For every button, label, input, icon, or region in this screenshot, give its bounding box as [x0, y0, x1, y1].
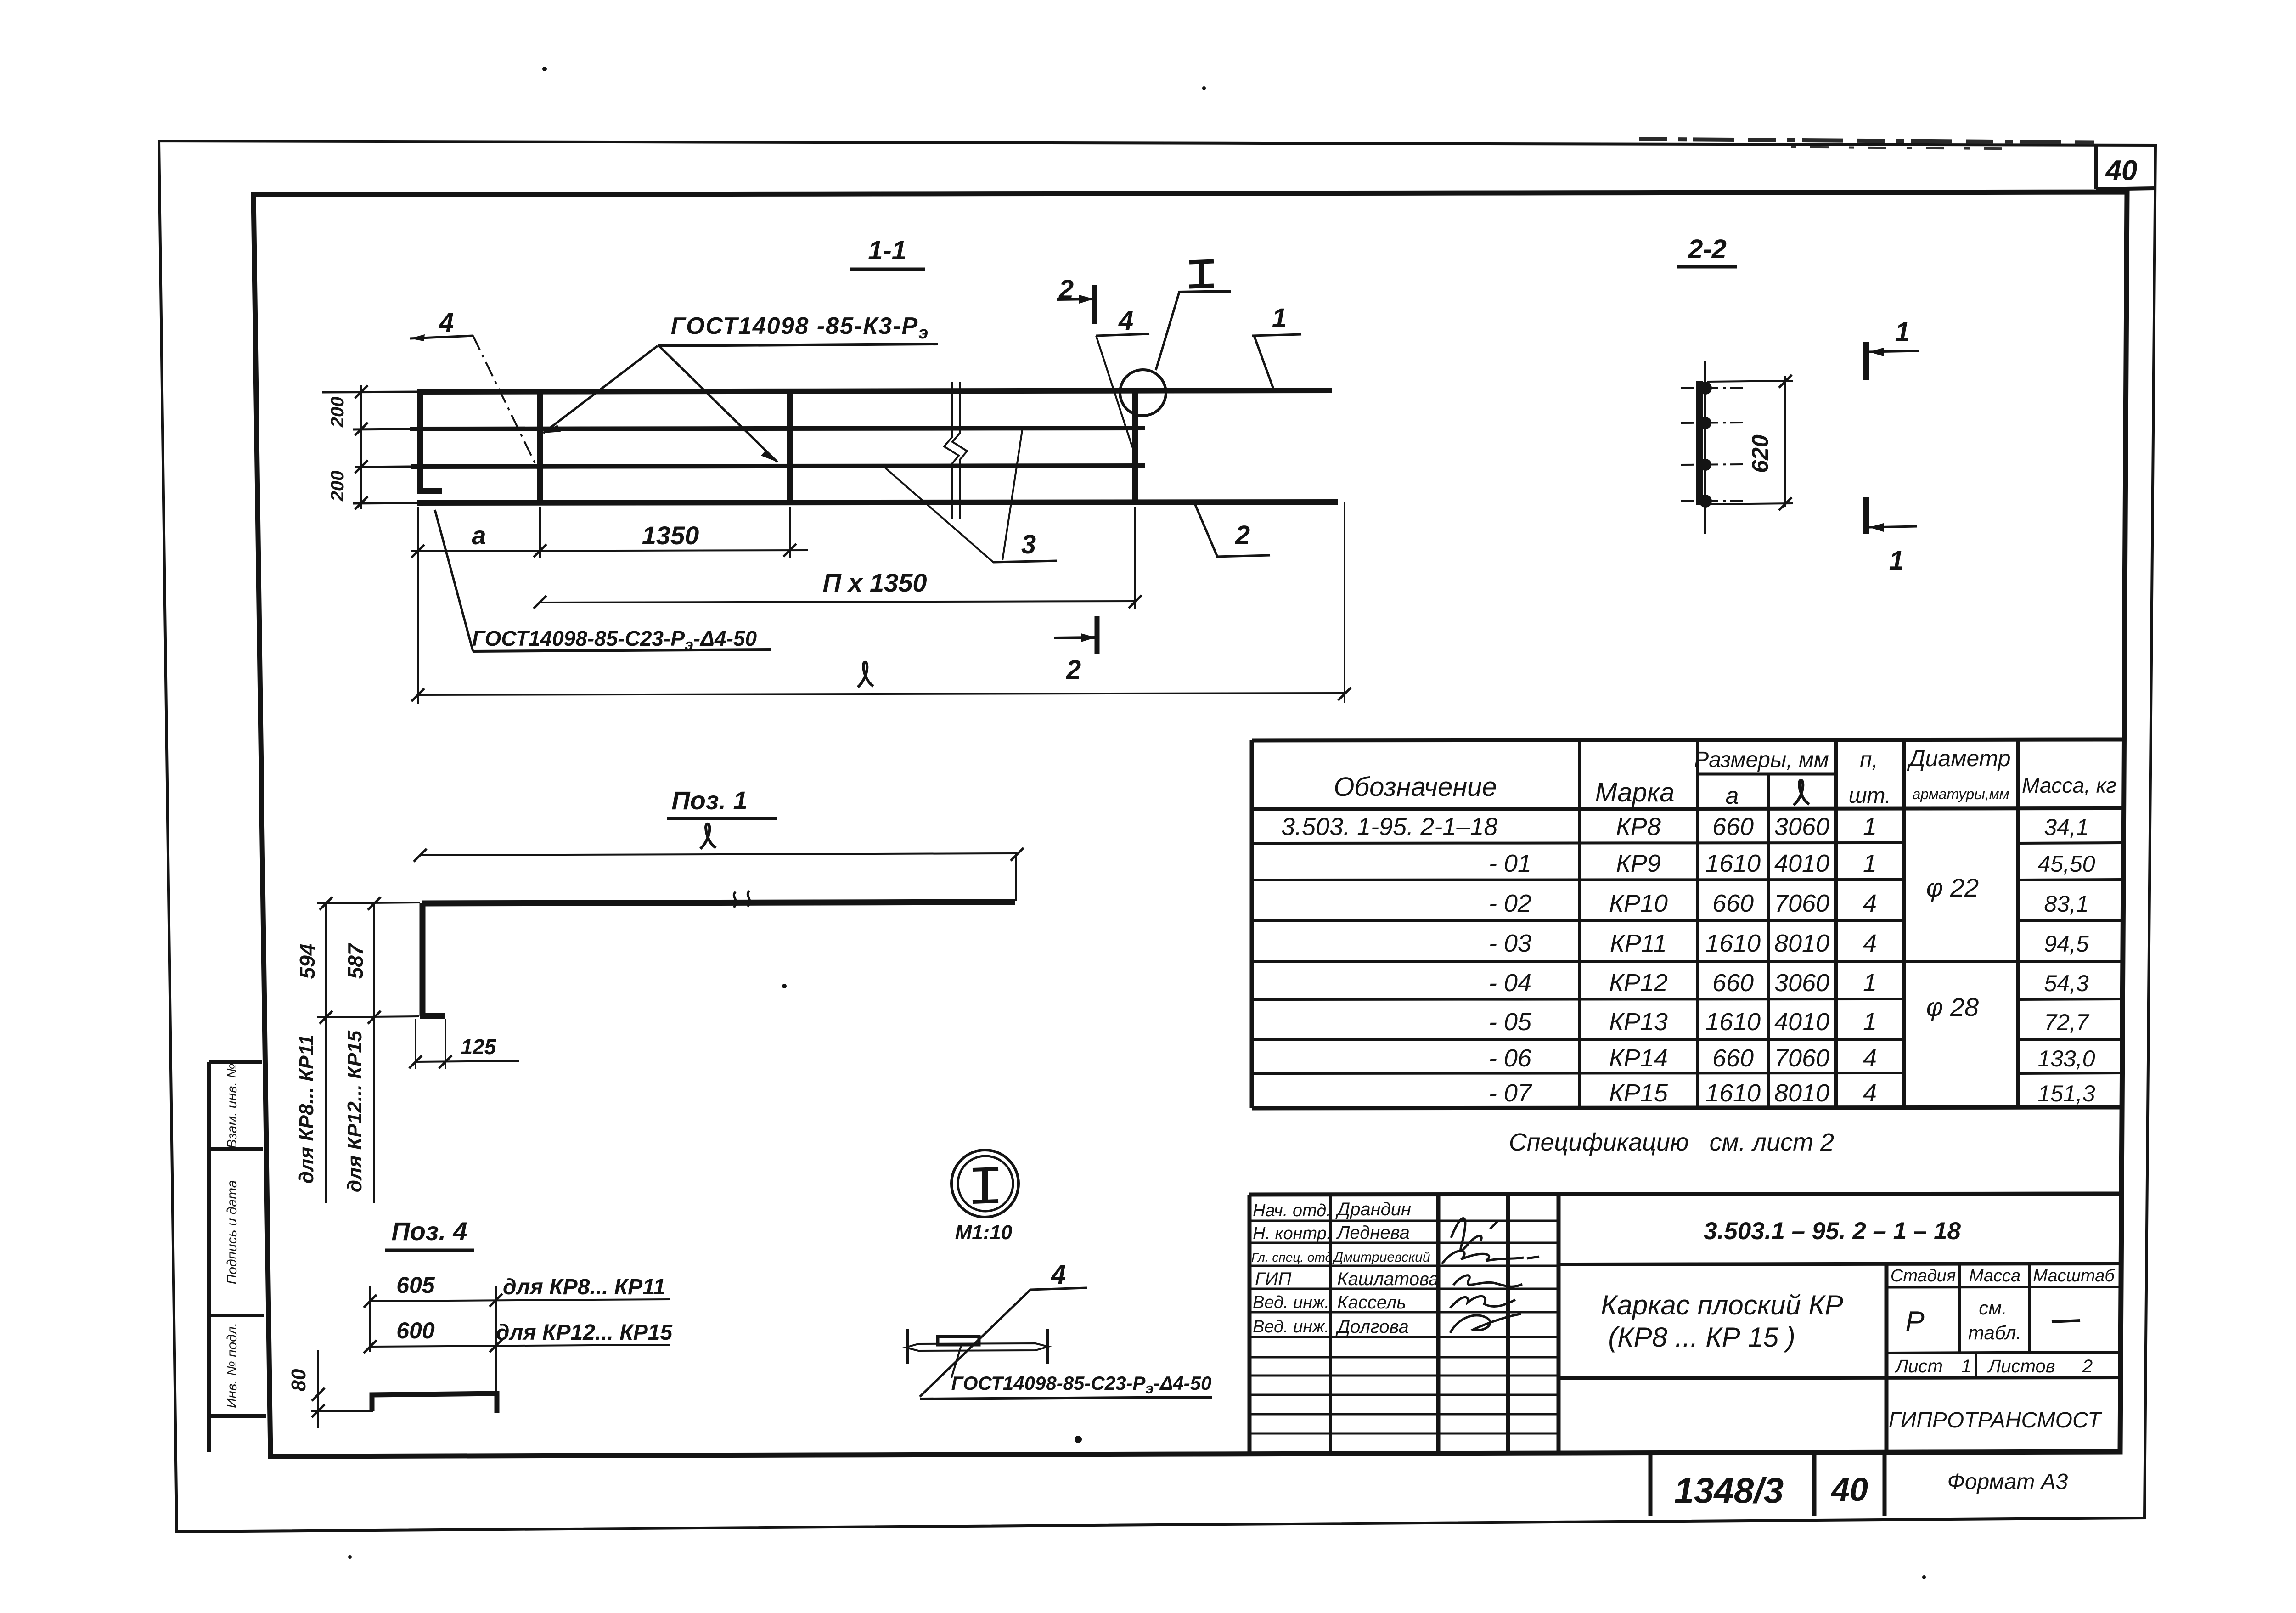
- svg-text:200: 200: [327, 471, 348, 502]
- svg-text:1: 1: [1863, 1008, 1877, 1036]
- svg-text:4010: 4010: [1774, 1008, 1829, 1036]
- svg-text:620: 620: [1747, 434, 1773, 473]
- svg-text:2: 2: [1235, 520, 1250, 550]
- svg-text:1: 1: [1272, 303, 1287, 333]
- svg-text:3.503. 1-95. 2-1–18: 3.503. 1-95. 2-1–18: [1281, 813, 1497, 840]
- svg-text:4: 4: [1863, 1079, 1877, 1107]
- svg-text:80: 80: [287, 1369, 310, 1391]
- svg-text:660: 660: [1712, 1044, 1754, 1072]
- svg-text:ГОСТ14098 -85-К3-Рэ: ГОСТ14098 -85-К3-Рэ: [671, 313, 929, 343]
- svg-text:94,5: 94,5: [2044, 931, 2089, 957]
- svg-text:- 01: - 01: [1489, 850, 1531, 877]
- svg-text:Листов: Листов: [1987, 1356, 2055, 1376]
- svg-text:Масса: Масса: [1969, 1266, 2020, 1286]
- svg-text:1348/3: 1348/3: [1674, 1470, 1784, 1511]
- svg-text:- 03: - 03: [1489, 930, 1531, 957]
- svg-text:Долгова: Долгова: [1335, 1317, 1409, 1337]
- svg-text:8010: 8010: [1774, 1079, 1829, 1107]
- svg-text:КР10: КР10: [1609, 890, 1668, 917]
- svg-text:40: 40: [2105, 155, 2138, 186]
- svg-text:шт.: шт.: [1849, 784, 1891, 808]
- svg-text:КР13: КР13: [1609, 1008, 1668, 1036]
- svg-text:КР8: КР8: [1616, 813, 1661, 840]
- svg-text:151,3: 151,3: [2037, 1081, 2095, 1106]
- svg-text:1-1: 1-1: [868, 236, 906, 265]
- svg-text:Поз. 4: Поз. 4: [391, 1217, 467, 1246]
- svg-text:Гл. спец. отд.: Гл. спец. отд.: [1251, 1250, 1336, 1264]
- svg-text:1: 1: [1863, 813, 1877, 840]
- svg-text:для КР12... КР15: для КР12... КР15: [343, 1030, 366, 1192]
- svg-text:2: 2: [2082, 1356, 2093, 1376]
- svg-text:1610: 1610: [1705, 1008, 1761, 1036]
- svg-text:83,1: 83,1: [2044, 891, 2088, 917]
- svg-text:1: 1: [1895, 317, 1910, 347]
- svg-text:Обозначение: Обозначение: [1334, 772, 1497, 802]
- svg-text:- 07: - 07: [1489, 1079, 1532, 1107]
- svg-text:3060: 3060: [1774, 969, 1829, 997]
- svg-text:1610: 1610: [1705, 850, 1761, 877]
- svg-text:Р: Р: [1905, 1306, 1924, 1337]
- svg-text:3: 3: [1021, 530, 1036, 559]
- svg-text:Кашлатова: Кашлатова: [1337, 1269, 1439, 1289]
- svg-text:φ 22: φ 22: [1926, 873, 1979, 902]
- svg-text:для КР8... КР11: для КР8... КР11: [295, 1035, 318, 1184]
- svg-text:40: 40: [1830, 1472, 1868, 1508]
- svg-text:54,3: 54,3: [2044, 970, 2089, 996]
- svg-text:Кассель: Кассель: [1337, 1292, 1406, 1313]
- svg-text:табл.: табл.: [1968, 1322, 2021, 1343]
- svg-text:Масштаб: Масштаб: [2033, 1266, 2115, 1286]
- svg-text:Нач. отд.: Нач. отд.: [1253, 1201, 1331, 1220]
- svg-text:3060: 3060: [1774, 813, 1829, 840]
- svg-text:М1:10: М1:10: [955, 1221, 1013, 1244]
- svg-text:арматуры,мм: арматуры,мм: [1912, 786, 2009, 802]
- svg-text:Марка: Марка: [1595, 778, 1674, 807]
- svg-text:4: 4: [1118, 306, 1133, 336]
- svg-text:- 04: - 04: [1489, 969, 1531, 997]
- svg-text:1610: 1610: [1705, 930, 1761, 957]
- svg-text:1: 1: [1863, 850, 1877, 877]
- svg-text:34,1: 34,1: [2044, 814, 2088, 840]
- svg-text:Размеры, мм: Размеры, мм: [1694, 748, 1829, 772]
- svg-text:a: a: [472, 521, 486, 550]
- svg-text:Диаметр: Диаметр: [1907, 745, 2010, 771]
- svg-text:Инв. № подл.: Инв. № подл.: [225, 1323, 240, 1408]
- svg-text:- 02: - 02: [1489, 890, 1531, 917]
- svg-text:600: 600: [396, 1318, 435, 1343]
- svg-text:ГИП: ГИП: [1255, 1269, 1292, 1289]
- svg-text:1: 1: [1863, 969, 1877, 997]
- svg-text:Стадия: Стадия: [1891, 1266, 1956, 1286]
- svg-text:Н. контр.: Н. контр.: [1253, 1224, 1331, 1243]
- svg-text:Каркас плоский КР: Каркас плоский КР: [1601, 1290, 1843, 1320]
- svg-text:КР11: КР11: [1610, 930, 1667, 957]
- svg-text:КР15: КР15: [1609, 1079, 1668, 1107]
- svg-text:4: 4: [1863, 930, 1877, 957]
- svg-text:Подпись и дата: Подпись и дата: [225, 1180, 240, 1285]
- svg-text:для КР12... КР15: для КР12... КР15: [496, 1320, 673, 1345]
- svg-text:Масса, кг: Масса, кг: [2022, 773, 2116, 797]
- svg-text:125: 125: [461, 1035, 497, 1059]
- svg-text:4: 4: [439, 308, 454, 338]
- svg-text:2-2: 2-2: [1688, 234, 1727, 264]
- svg-text:4: 4: [1863, 1044, 1877, 1072]
- svg-text:7060: 7060: [1774, 1044, 1829, 1072]
- svg-text:45,50: 45,50: [2037, 851, 2095, 877]
- svg-text:2: 2: [1066, 655, 1081, 685]
- svg-text:72,7: 72,7: [2044, 1010, 2090, 1035]
- svg-text:587: 587: [343, 942, 367, 979]
- svg-text:1350: 1350: [642, 521, 699, 550]
- svg-text:1: 1: [1961, 1356, 1971, 1376]
- svg-text:- 06: - 06: [1489, 1044, 1532, 1072]
- svg-text:ГОСТ14098-85-С23-Рэ-Δ4-50: ГОСТ14098-85-С23-Рэ-Δ4-50: [951, 1372, 1212, 1397]
- svg-text:φ 28: φ 28: [1926, 993, 1979, 1021]
- svg-text:для КР8... КР11: для КР8... КР11: [503, 1275, 665, 1299]
- svg-text:660: 660: [1712, 890, 1754, 917]
- svg-text:КР12: КР12: [1609, 969, 1668, 997]
- svg-text:Леднева: Леднева: [1336, 1223, 1410, 1243]
- svg-text:4: 4: [1051, 1260, 1066, 1290]
- svg-text:КР9: КР9: [1616, 850, 1661, 877]
- svg-text:Драндин: Драндин: [1335, 1199, 1411, 1219]
- svg-text:Спецификацию см. лист 2: Спецификацию см. лист 2: [1509, 1128, 1834, 1156]
- svg-text:4010: 4010: [1774, 850, 1829, 877]
- svg-text:П х 1350: П х 1350: [822, 568, 927, 597]
- svg-text:4: 4: [1863, 890, 1877, 917]
- svg-text:КР14: КР14: [1609, 1044, 1668, 1072]
- svg-text:594: 594: [295, 944, 319, 979]
- svg-text:200: 200: [327, 397, 348, 428]
- svg-text:8010: 8010: [1774, 930, 1829, 957]
- svg-text:(КР8 ... КР 15 ): (КР8 ... КР 15 ): [1608, 1322, 1795, 1353]
- svg-text:п,: п,: [1860, 748, 1878, 772]
- svg-text:133,0: 133,0: [2037, 1046, 2095, 1072]
- svg-text:660: 660: [1712, 813, 1754, 840]
- svg-text:Вед. инж.: Вед. инж.: [1253, 1293, 1329, 1312]
- svg-text:660: 660: [1712, 969, 1754, 997]
- svg-text:a: a: [1726, 783, 1739, 809]
- svg-text:7060: 7060: [1774, 890, 1829, 917]
- svg-text:Вед. инж.: Вед. инж.: [1253, 1317, 1329, 1337]
- svg-text:см.: см.: [1979, 1297, 2007, 1319]
- svg-text:Дмитриевский: Дмитриевский: [1332, 1250, 1430, 1265]
- svg-text:1610: 1610: [1705, 1079, 1761, 1107]
- svg-text:Формат А3: Формат А3: [1947, 1470, 2068, 1494]
- svg-text:Поз. 1: Поз. 1: [671, 786, 747, 815]
- svg-text:605: 605: [396, 1272, 435, 1298]
- svg-text:Взам. инв. №: Взам. инв. №: [225, 1063, 240, 1149]
- svg-text:Лист: Лист: [1894, 1356, 1943, 1376]
- svg-text:- 05: - 05: [1489, 1008, 1532, 1036]
- svg-text:1: 1: [1889, 546, 1904, 575]
- svg-text:3.503.1 – 95. 2 – 1 – 18: 3.503.1 – 95. 2 – 1 – 18: [1704, 1218, 1961, 1245]
- svg-text:ГИПРОТРАНСМОСТ: ГИПРОТРАНСМОСТ: [1889, 1408, 2103, 1433]
